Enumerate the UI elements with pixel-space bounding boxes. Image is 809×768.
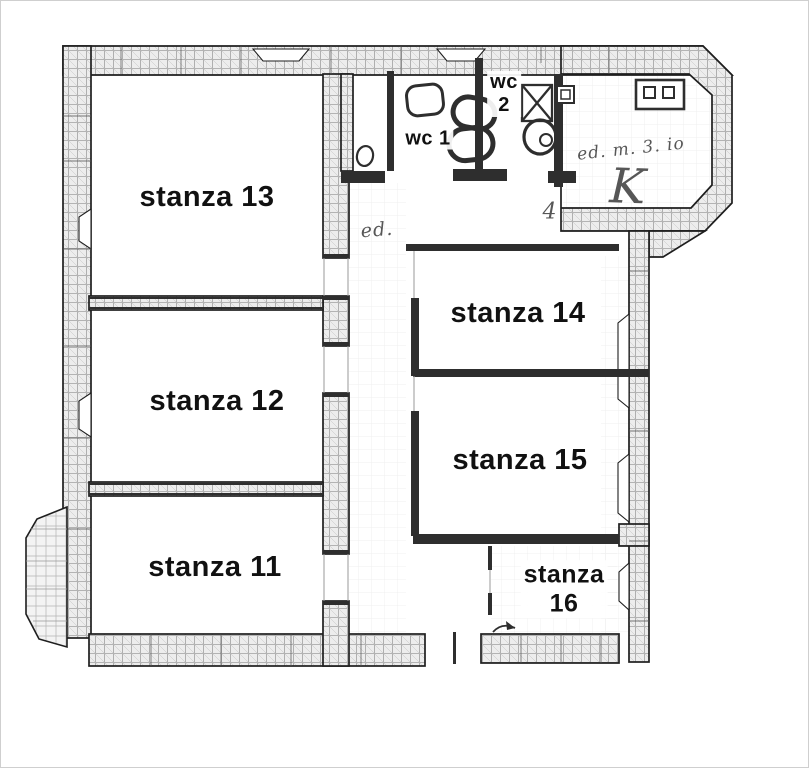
bidet-icon — [447, 126, 494, 162]
room-label-wc-2: wc 2 — [487, 71, 521, 117]
room-label-stanza-13: stanza 13 — [136, 182, 277, 212]
floor-plan-drawing — [1, 1, 809, 768]
room-label-stanza-16-line2: 16 — [524, 589, 605, 618]
door-mark: 4 — [540, 200, 561, 223]
entry-door-note: ed. — [357, 219, 397, 242]
room-label-wc-1: wc 1 — [402, 129, 453, 150]
room-label-stanza-16: stanza 16 — [521, 560, 608, 618]
drain-icon — [355, 145, 375, 168]
room-label-wc-2-line1: wc — [490, 71, 518, 94]
wc2-toilet-icon — [524, 120, 556, 154]
room-label-stanza-11: stanza 11 — [145, 552, 284, 582]
room-label-stanza-15: stanza 15 — [449, 445, 590, 475]
kitchen-flue-icon — [557, 86, 574, 103]
floor-plan-page: stanza 13 stanza 12 stanza 11 stanza 14 … — [0, 0, 809, 768]
room-label-stanza-12: stanza 12 — [146, 386, 287, 416]
bay-window — [26, 507, 67, 647]
room-label-stanza-14: stanza 14 — [447, 298, 588, 328]
room-label-stanza-16-line1: stanza — [524, 560, 605, 589]
stove-icon — [636, 80, 684, 109]
sink-icon — [406, 83, 445, 117]
room-label-wc-2-line2: 2 — [490, 94, 518, 117]
scan-texture — [349, 76, 711, 636]
kitchen-letter: K — [606, 161, 651, 213]
shower-icon — [522, 85, 552, 121]
